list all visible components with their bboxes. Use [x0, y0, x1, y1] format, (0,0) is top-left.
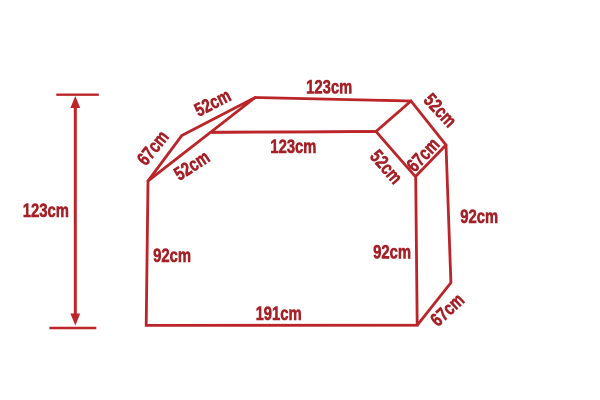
svg-text:191cm: 191cm	[256, 303, 302, 324]
svg-text:52cm: 52cm	[419, 89, 460, 131]
svg-text:123cm: 123cm	[270, 136, 316, 157]
svg-text:52cm: 52cm	[366, 146, 407, 188]
svg-text:123cm: 123cm	[23, 200, 69, 221]
svg-text:52cm: 52cm	[170, 146, 213, 184]
svg-text:52cm: 52cm	[191, 85, 234, 121]
svg-text:92cm: 92cm	[153, 245, 191, 266]
svg-text:67cm: 67cm	[133, 127, 173, 170]
svg-text:92cm: 92cm	[460, 206, 498, 227]
svg-text:123cm: 123cm	[306, 77, 352, 98]
svg-text:92cm: 92cm	[373, 242, 411, 263]
svg-text:67cm: 67cm	[426, 289, 468, 330]
